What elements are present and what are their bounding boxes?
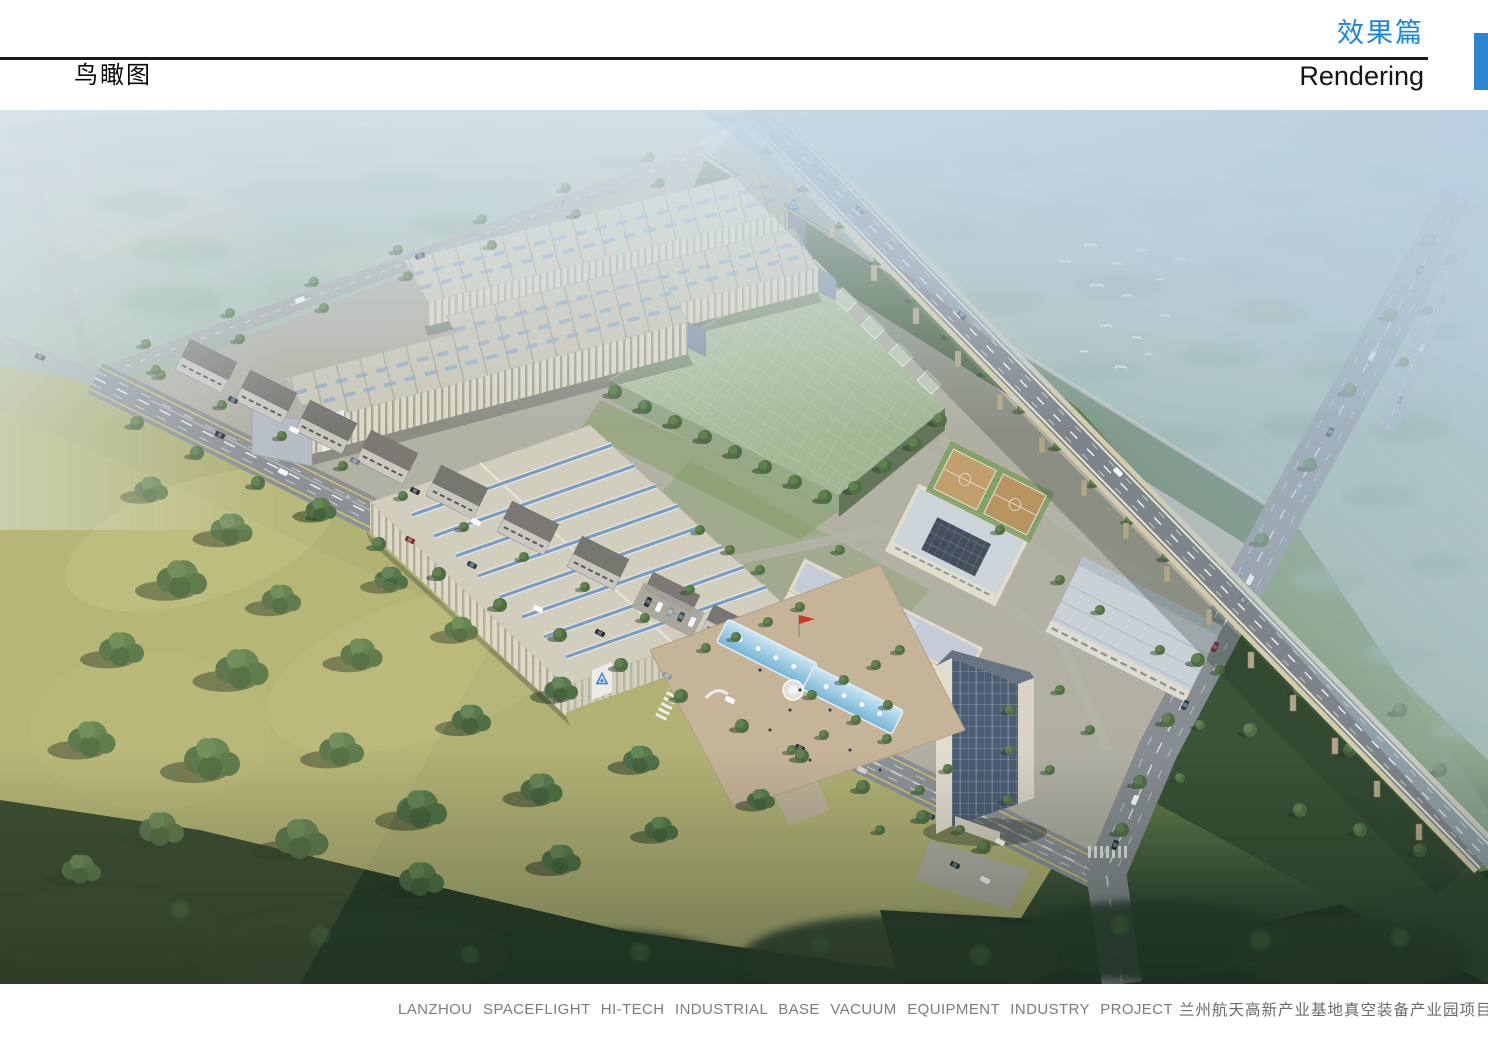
header-divider	[0, 57, 1428, 60]
header-tab-marker	[1474, 33, 1488, 90]
aerial-rendering-figure	[0, 110, 1488, 984]
project-name-en: LANZHOU SPACEFLIGHT HI-TECH INDUSTRIAL B…	[398, 1001, 1173, 1018]
section-title-cn: 效果篇	[1337, 20, 1424, 47]
presentation-page: 效果篇 Rendering 鸟瞰图	[0, 0, 1488, 1052]
project-name-cn: 兰州航天高新产业基地真空装备产业园项目	[1179, 998, 1488, 1020]
section-title-en: Rendering	[1299, 63, 1424, 90]
page-title: 鸟瞰图	[74, 64, 152, 88]
haze-overlays	[0, 110, 1488, 984]
footer-caption: LANZHOU SPACEFLIGHT HI-TECH INDUSTRIAL B…	[398, 999, 1488, 1019]
